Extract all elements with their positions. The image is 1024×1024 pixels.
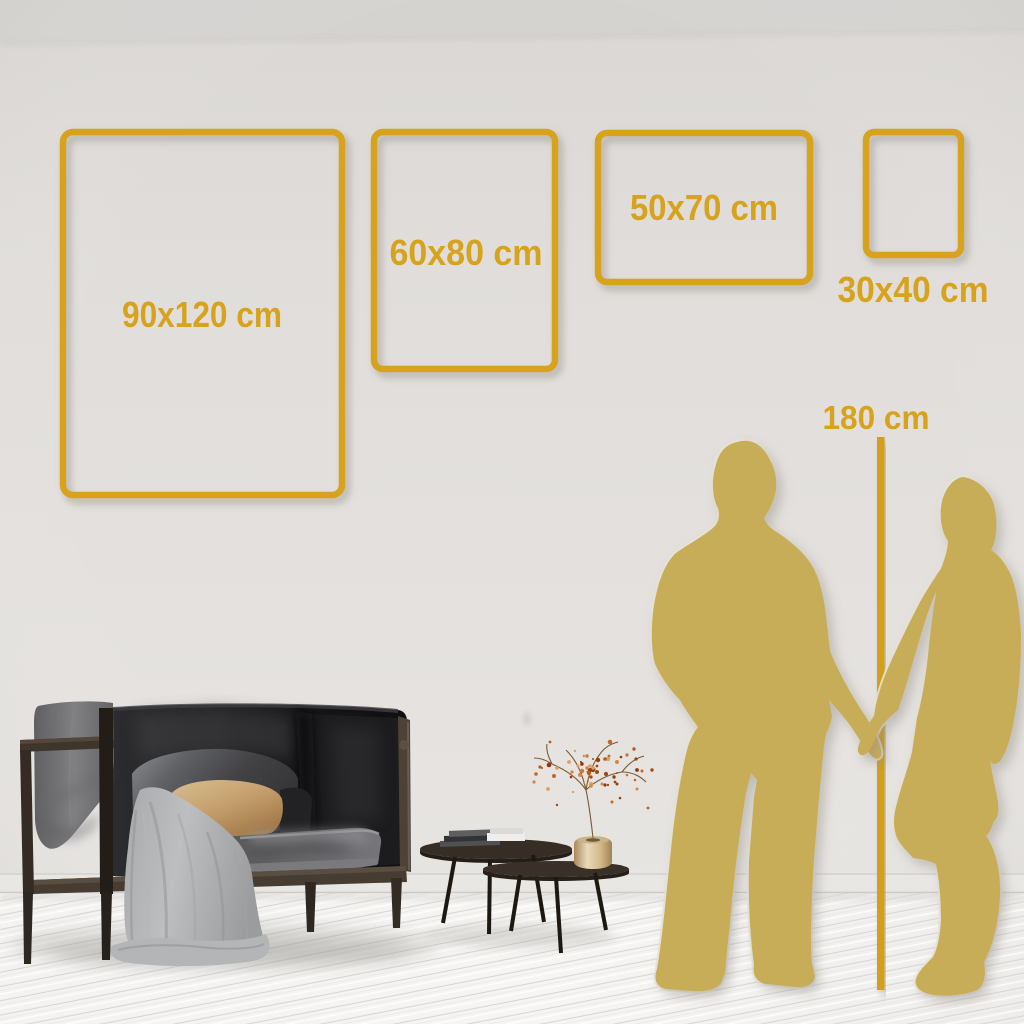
svg-text:90x120 cm: 90x120 cm bbox=[122, 294, 282, 335]
svg-text:180 cm: 180 cm bbox=[823, 399, 930, 436]
svg-text:60x80 cm: 60x80 cm bbox=[390, 232, 543, 273]
svg-text:50x70 cm: 50x70 cm bbox=[630, 187, 778, 228]
svg-text:30x40 cm: 30x40 cm bbox=[838, 269, 989, 310]
